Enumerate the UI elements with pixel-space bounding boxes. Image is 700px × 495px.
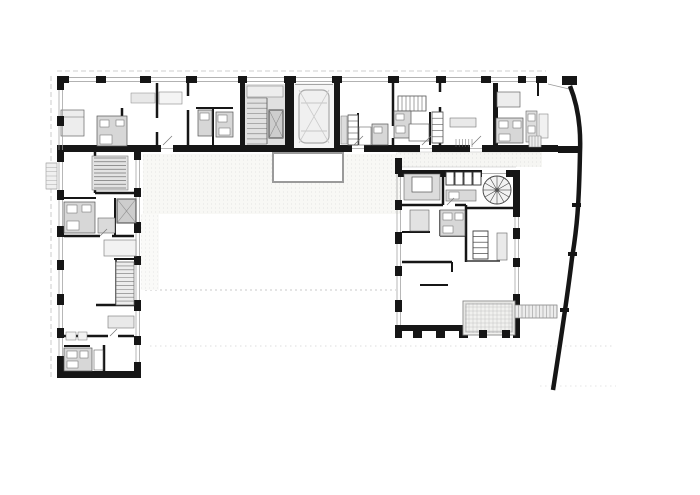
fixture xyxy=(513,121,521,128)
wall-pier xyxy=(413,331,422,338)
wall-pier xyxy=(134,362,141,378)
fixture xyxy=(396,114,404,120)
cabinet-column xyxy=(473,231,488,259)
wall-pier xyxy=(57,260,64,270)
wall-pier xyxy=(536,76,547,83)
wall-pier xyxy=(395,232,402,244)
wall-pier xyxy=(479,330,487,338)
stair-landing xyxy=(247,86,283,97)
wall-pier xyxy=(388,76,399,83)
kitchen-counter xyxy=(131,93,155,103)
garage-wall xyxy=(334,83,340,148)
fixture xyxy=(100,135,112,144)
wall-pier xyxy=(134,300,141,311)
floorplan-canvas xyxy=(0,0,700,495)
fixture xyxy=(66,332,76,340)
fixture xyxy=(443,226,453,233)
wall-pier xyxy=(57,76,64,90)
fixture xyxy=(528,114,535,121)
fixture xyxy=(396,126,405,133)
fixture xyxy=(82,205,91,212)
wall xyxy=(395,325,465,331)
wall-pier xyxy=(134,188,141,197)
fixture xyxy=(449,192,459,199)
wall-pier xyxy=(238,76,247,83)
wall-pier xyxy=(332,76,342,83)
fixture xyxy=(200,113,209,120)
door-leaf xyxy=(163,136,172,145)
fixture xyxy=(116,120,124,126)
closet xyxy=(159,92,182,104)
kitchen-counter xyxy=(341,116,347,144)
wall-pier xyxy=(513,228,520,239)
wall-pier xyxy=(134,222,141,233)
boundary-tick xyxy=(572,203,581,207)
wall xyxy=(482,145,558,152)
wall-pier xyxy=(57,150,64,162)
wall-pier xyxy=(284,76,296,83)
wall xyxy=(513,170,520,217)
wall-pier xyxy=(436,331,445,338)
right-block xyxy=(395,158,557,338)
wall-pier xyxy=(518,76,526,83)
bed xyxy=(409,124,429,141)
fixture xyxy=(67,205,77,213)
door-leaf xyxy=(472,136,481,145)
counter xyxy=(94,350,103,370)
wall-pier xyxy=(134,336,141,345)
wall xyxy=(57,371,141,378)
wall xyxy=(432,145,470,152)
stair-long xyxy=(116,262,134,305)
cabinet xyxy=(473,172,481,185)
wall-pier xyxy=(134,256,141,265)
wall-pier xyxy=(513,258,520,267)
fixture xyxy=(219,128,230,135)
bed xyxy=(359,127,371,145)
wall-pier xyxy=(436,76,446,83)
counter xyxy=(108,316,134,328)
fixture xyxy=(100,120,109,127)
fixture xyxy=(499,134,510,141)
wall-pier xyxy=(57,328,64,338)
cabinet xyxy=(446,172,454,185)
fixture xyxy=(455,213,463,220)
wall-pier xyxy=(96,76,106,83)
table xyxy=(539,114,548,138)
floor-plan-drawing xyxy=(0,0,700,495)
wall-stub xyxy=(558,146,578,153)
wall-pier xyxy=(395,200,402,210)
wall-pier xyxy=(57,190,64,200)
fixture xyxy=(67,351,77,358)
boundary-wall xyxy=(553,86,581,390)
fixture xyxy=(499,121,508,128)
cabinet-column xyxy=(348,115,358,145)
cabinet-column xyxy=(432,112,443,143)
storage xyxy=(98,218,115,233)
boundary-tick xyxy=(560,308,569,312)
wall-pier xyxy=(395,266,402,276)
stair-core-wall xyxy=(285,83,294,148)
fixture xyxy=(67,361,78,368)
storage xyxy=(410,210,429,231)
fixture xyxy=(67,221,79,230)
cabinet xyxy=(464,172,472,185)
door-leaf xyxy=(110,329,117,336)
boundary-tick xyxy=(568,252,577,256)
wall-pier xyxy=(140,76,151,83)
fixture xyxy=(80,351,88,358)
wall-pier xyxy=(562,76,577,85)
stair-core-wall xyxy=(240,83,245,148)
kitchen-island xyxy=(497,233,507,260)
bed xyxy=(412,177,432,192)
fixture xyxy=(374,127,382,133)
wall-pier xyxy=(395,300,402,312)
wall-pier xyxy=(57,116,64,126)
fixture xyxy=(443,213,452,220)
cabinet xyxy=(455,172,463,185)
wall-pier xyxy=(134,148,141,160)
wall xyxy=(364,145,420,152)
wall-pier xyxy=(502,330,510,338)
wall-pier xyxy=(57,226,64,237)
bed xyxy=(497,92,520,107)
fixture xyxy=(218,115,227,122)
wall-pier xyxy=(57,294,64,305)
bed xyxy=(61,110,84,136)
kitchen-island xyxy=(450,118,476,127)
ramp-outline xyxy=(273,153,343,182)
boundary-wall-curve xyxy=(553,86,580,390)
wall-pier xyxy=(481,76,491,83)
top-wing xyxy=(57,76,578,153)
fixture xyxy=(78,332,87,340)
table xyxy=(104,240,136,256)
fixture xyxy=(528,126,535,133)
wall-pier xyxy=(186,76,197,83)
